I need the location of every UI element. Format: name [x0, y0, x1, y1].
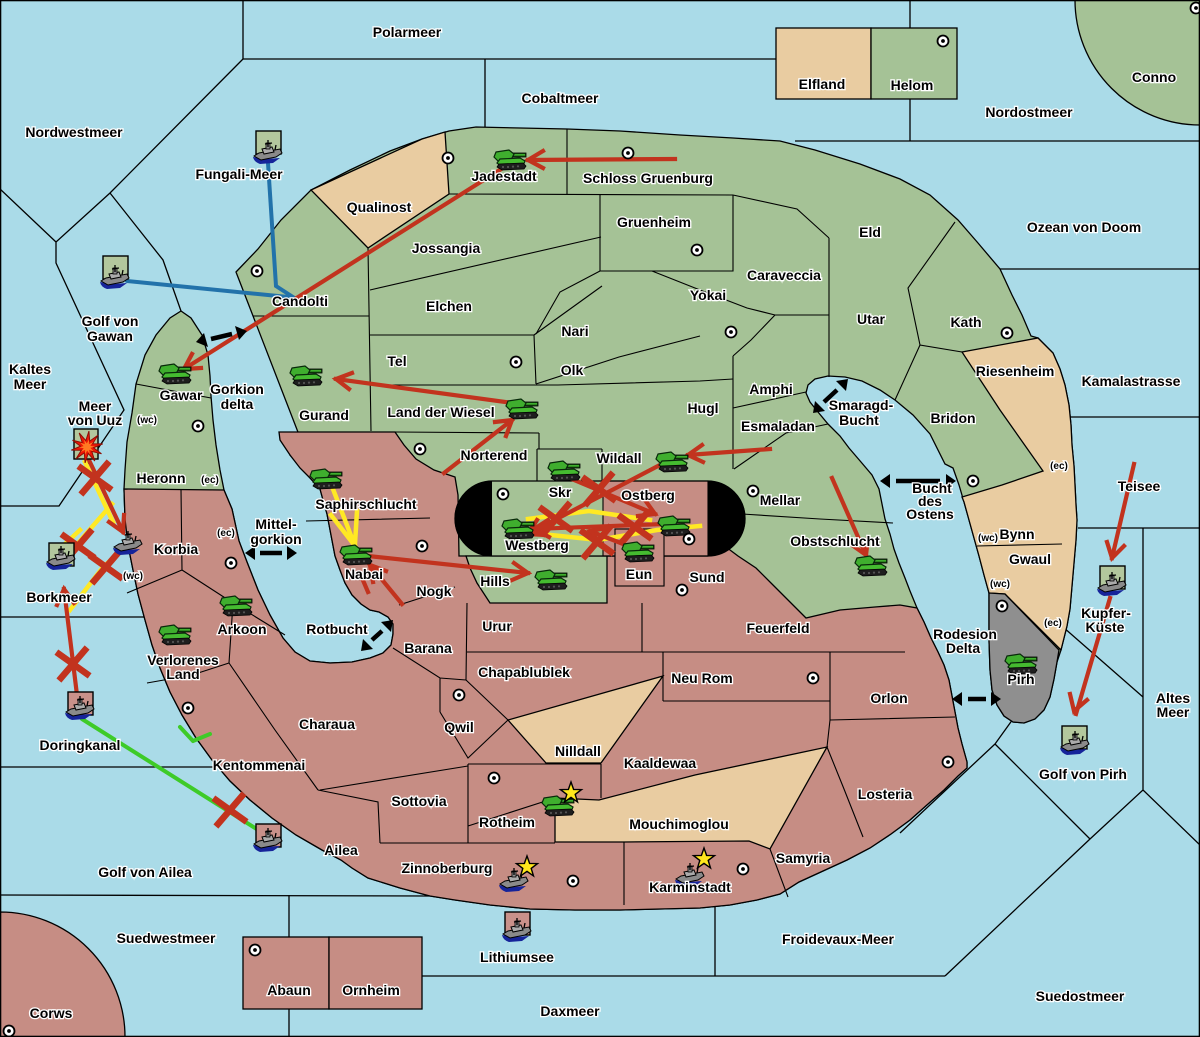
svg-text:delta: delta — [221, 396, 254, 412]
svg-text:Mellar: Mellar — [760, 492, 801, 508]
svg-text:Lithiumsee: Lithiumsee — [480, 949, 554, 965]
svg-text:Tel: Tel — [387, 353, 406, 369]
svg-text:(wc): (wc) — [137, 415, 157, 426]
svg-text:Utar: Utar — [857, 311, 886, 327]
svg-text:Jadestadt: Jadestadt — [471, 168, 537, 184]
svg-text:Golf von Pirh: Golf von Pirh — [1039, 766, 1127, 782]
svg-text:Kath: Kath — [950, 314, 981, 330]
svg-text:Yokai: Yokai — [690, 287, 726, 303]
svg-text:Land der Wiesel: Land der Wiesel — [387, 404, 494, 420]
svg-text:Ozean von Doom: Ozean von Doom — [1027, 219, 1141, 235]
svg-text:Mouchimoglou: Mouchimoglou — [629, 816, 729, 832]
svg-text:von Uuz: von Uuz — [68, 412, 122, 428]
svg-text:Gwaul: Gwaul — [1009, 551, 1051, 567]
svg-text:(ec): (ec) — [201, 475, 219, 486]
svg-text:Qwil: Qwil — [444, 719, 474, 735]
svg-text:Teisee: Teisee — [1118, 478, 1161, 494]
svg-text:Bridon: Bridon — [930, 410, 975, 426]
svg-text:Karminstadt: Karminstadt — [649, 879, 731, 895]
svg-text:Sottovia: Sottovia — [391, 793, 446, 809]
svg-text:Polarmeer: Polarmeer — [373, 24, 442, 40]
svg-text:Charaua: Charaua — [299, 716, 355, 732]
svg-text:Cobaltmeer: Cobaltmeer — [521, 90, 599, 106]
svg-text:Gawar: Gawar — [160, 387, 203, 403]
svg-text:Suedostmeer: Suedostmeer — [1036, 988, 1125, 1004]
svg-text:Norterend: Norterend — [461, 447, 528, 463]
svg-text:(ec): (ec) — [1050, 461, 1068, 472]
svg-text:Daxmeer: Daxmeer — [540, 1003, 600, 1019]
svg-text:Ailea: Ailea — [324, 842, 358, 858]
svg-text:Kamalastrasse: Kamalastrasse — [1082, 373, 1181, 389]
svg-text:Saphirschlucht: Saphirschlucht — [315, 496, 416, 512]
svg-text:Sund: Sund — [690, 569, 725, 585]
svg-text:Küste: Küste — [1086, 619, 1125, 635]
svg-text:Gawan: Gawan — [87, 328, 133, 344]
svg-text:Wildall: Wildall — [597, 450, 642, 466]
svg-text:Nogk: Nogk — [417, 583, 452, 599]
svg-text:Jossangia: Jossangia — [412, 240, 481, 256]
svg-text:Gorkion: Gorkion — [210, 381, 264, 397]
svg-text:Qualinost: Qualinost — [347, 199, 412, 215]
svg-text:Smaragd-: Smaragd- — [829, 397, 894, 413]
svg-text:Esmaladan: Esmaladan — [741, 418, 815, 434]
svg-text:gorkion: gorkion — [250, 531, 301, 547]
svg-text:Pirh: Pirh — [1007, 671, 1034, 687]
svg-text:Nari: Nari — [561, 323, 588, 339]
svg-text:Riesenheim: Riesenheim — [976, 363, 1055, 379]
svg-text:Rotheim: Rotheim — [479, 814, 535, 830]
svg-text:Meer: Meer — [1157, 704, 1190, 720]
svg-text:Doringkanal: Doringkanal — [40, 737, 121, 753]
svg-text:Ostberg: Ostberg — [621, 487, 675, 503]
svg-text:(wc): (wc) — [990, 579, 1010, 590]
svg-text:Losteria: Losteria — [858, 786, 913, 802]
svg-text:Rotbucht: Rotbucht — [306, 621, 368, 637]
svg-text:Neu Rom: Neu Rom — [671, 670, 732, 686]
svg-text:Land: Land — [166, 666, 199, 682]
svg-text:Nordwestmeer: Nordwestmeer — [25, 124, 123, 140]
svg-text:Meer: Meer — [14, 376, 47, 392]
svg-text:Gruenheim: Gruenheim — [617, 214, 691, 230]
svg-text:(ec): (ec) — [1044, 618, 1062, 629]
svg-text:Zinnoberburg: Zinnoberburg — [402, 860, 493, 876]
svg-text:Bucht: Bucht — [839, 412, 879, 428]
svg-text:Eun: Eun — [626, 566, 652, 582]
svg-text:(wc): (wc) — [123, 571, 143, 582]
svg-text:Helom: Helom — [891, 77, 934, 93]
svg-text:Caraveccia: Caraveccia — [747, 267, 821, 283]
svg-text:Hills: Hills — [480, 573, 510, 589]
svg-text:Hugl: Hugl — [687, 400, 718, 416]
svg-text:Nordostmeer: Nordostmeer — [985, 104, 1073, 120]
svg-text:Westberg: Westberg — [505, 537, 569, 553]
svg-text:Froidevaux-Meer: Froidevaux-Meer — [782, 931, 895, 947]
svg-text:Bynn: Bynn — [1000, 526, 1035, 542]
svg-text:Heronn: Heronn — [137, 470, 186, 486]
svg-text:Amphi: Amphi — [749, 381, 793, 397]
svg-text:(wc): (wc) — [978, 533, 998, 544]
svg-text:Gurand: Gurand — [299, 407, 349, 423]
svg-text:Delta: Delta — [946, 640, 980, 656]
svg-text:Elfland: Elfland — [799, 76, 846, 92]
svg-text:Barana: Barana — [404, 640, 452, 656]
svg-text:Urur: Urur — [482, 618, 512, 634]
svg-text:Arkoon: Arkoon — [218, 621, 267, 637]
svg-text:Skr: Skr — [549, 484, 572, 500]
svg-text:Elchen: Elchen — [426, 298, 472, 314]
svg-text:Abaun: Abaun — [267, 982, 311, 998]
svg-text:Golf von Ailea: Golf von Ailea — [98, 864, 192, 880]
svg-text:Kaaldewaa: Kaaldewaa — [624, 755, 697, 771]
svg-text:Kentommenai: Kentommenai — [213, 757, 306, 773]
svg-text:Nilldall: Nilldall — [555, 743, 601, 759]
svg-text:Obstschlucht: Obstschlucht — [790, 533, 880, 549]
svg-text:Fungali-Meer: Fungali-Meer — [195, 166, 283, 182]
svg-text:Nabai: Nabai — [345, 566, 383, 582]
svg-text:Ostens: Ostens — [906, 506, 954, 522]
svg-text:Suedwestmeer: Suedwestmeer — [117, 930, 216, 946]
svg-text:Samyria: Samyria — [776, 850, 831, 866]
svg-text:Schloss Gruenburg: Schloss Gruenburg — [583, 170, 713, 186]
svg-text:Corws: Corws — [30, 1005, 73, 1021]
svg-text:Olk: Olk — [561, 362, 584, 378]
svg-text:Candolti: Candolti — [272, 293, 328, 309]
svg-text:Feuerfeld: Feuerfeld — [746, 620, 809, 636]
svg-text:Chapablublek: Chapablublek — [478, 664, 570, 680]
svg-text:Orlon: Orlon — [870, 690, 907, 706]
svg-text:Golf von: Golf von — [82, 313, 139, 329]
svg-text:Korbia: Korbia — [154, 541, 199, 557]
svg-text:Ornheim: Ornheim — [342, 982, 400, 998]
svg-text:Conno: Conno — [1132, 69, 1176, 85]
svg-text:Mittel-: Mittel- — [255, 516, 297, 532]
svg-text:(ec): (ec) — [217, 528, 235, 539]
svg-text:Kaltes: Kaltes — [9, 361, 51, 377]
svg-text:Eld: Eld — [859, 224, 881, 240]
svg-text:Borkmeer: Borkmeer — [26, 589, 92, 605]
